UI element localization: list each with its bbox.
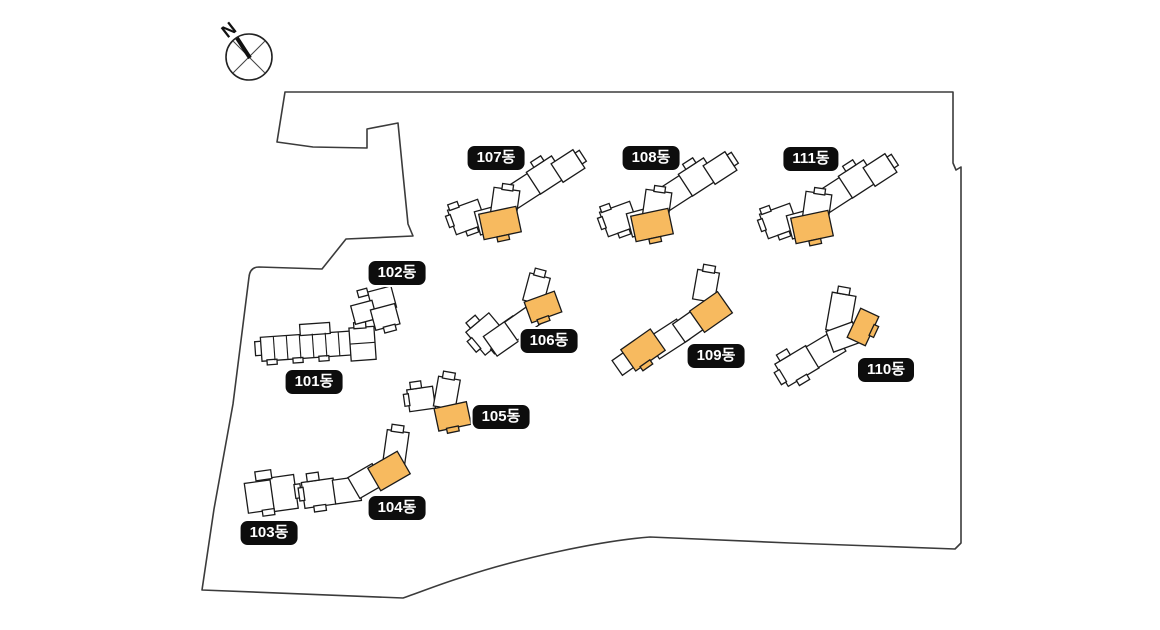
building-105[interactable] xyxy=(402,370,472,435)
building-104-label[interactable]: 104동 xyxy=(367,494,428,522)
building-110-label[interactable]: 110동 xyxy=(856,356,916,384)
building-109-label[interactable]: 109동 xyxy=(686,342,747,370)
building-105-label[interactable]: 105동 xyxy=(471,403,532,431)
building-102-label[interactable]: 102동 xyxy=(367,259,428,287)
compass: N xyxy=(218,18,272,80)
building-103[interactable] xyxy=(243,466,304,518)
building-107-label[interactable]: 107동 xyxy=(466,144,527,172)
building-101-label[interactable]: 101동 xyxy=(284,368,345,396)
building-108-label[interactable]: 108동 xyxy=(621,144,682,172)
building-103-label[interactable]: 103동 xyxy=(239,519,300,547)
site-plan: N xyxy=(0,0,1160,630)
site-plan-svg: N xyxy=(0,0,1160,630)
building-111-label[interactable]: 111동 xyxy=(781,145,840,173)
building-106-label[interactable]: 106동 xyxy=(519,327,580,355)
building-101[interactable] xyxy=(254,319,376,367)
